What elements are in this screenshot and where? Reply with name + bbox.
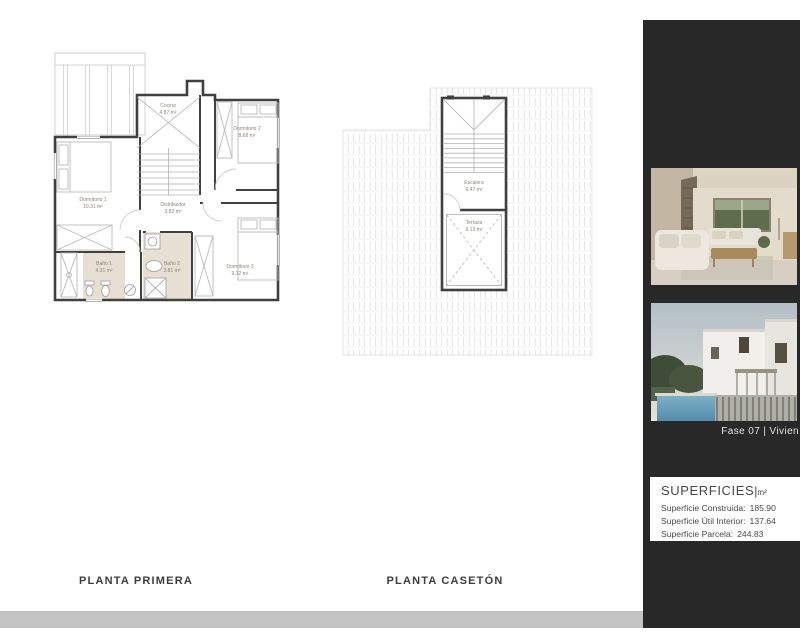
floor-plan-planta-caseton: Escalera 6.47 m² Terraza 9.13 m²	[340, 60, 600, 370]
plan-title-planta-primera: PLANTA PRIMERA	[41, 575, 231, 587]
superficie-construida-row: Superficie Construida:185.90	[661, 502, 800, 515]
floor-plan-planta-primera: Cocina 4.87 m² Dormitorio 2 8.68 m² Dorm…	[40, 50, 300, 310]
planta-caseton-drawing	[340, 60, 600, 370]
superficie-util-label: Superficie Útil Interior:	[661, 516, 746, 526]
superficies-heading: SUPERFICIES	[661, 483, 754, 498]
superficie-parcela-label: Superficie Parcela:	[661, 529, 733, 539]
sidebar: Fase 07 | Vivien SUPERFICIES|m² Superfic…	[643, 20, 800, 628]
superficie-parcela-row: Superficie Parcela:244.83	[661, 528, 800, 541]
superficies-unit: m²	[757, 488, 766, 497]
bottom-gray-band	[0, 611, 643, 628]
plan-sheet-page: Cocina 4.87 m² Dormitorio 2 8.68 m² Dorm…	[0, 0, 800, 640]
interior-living-room-image	[651, 168, 797, 285]
plan-title-planta-caseton: PLANTA CASETÓN	[350, 575, 540, 587]
planta-primera-drawing	[40, 50, 300, 310]
exterior-villa-pool-image	[651, 303, 797, 421]
superficies-heading-line: SUPERFICIES|m²	[661, 482, 800, 500]
photo-interior-living-room	[651, 168, 797, 285]
superficie-util-row: Superficie Útil Interior:137.64	[661, 515, 800, 528]
superficie-construida-label: Superficie Construida:	[661, 503, 746, 513]
superficie-parcela-value: 244.83	[737, 529, 763, 539]
superficie-util-value: 137.64	[750, 516, 776, 526]
phase-caption: Fase 07 | Vivien	[721, 426, 799, 437]
superficies-box: SUPERFICIES|m² Superficie Construida:185…	[650, 477, 800, 541]
photo-exterior-villa-pool	[651, 303, 797, 421]
superficie-construida-value: 185.90	[750, 503, 776, 513]
